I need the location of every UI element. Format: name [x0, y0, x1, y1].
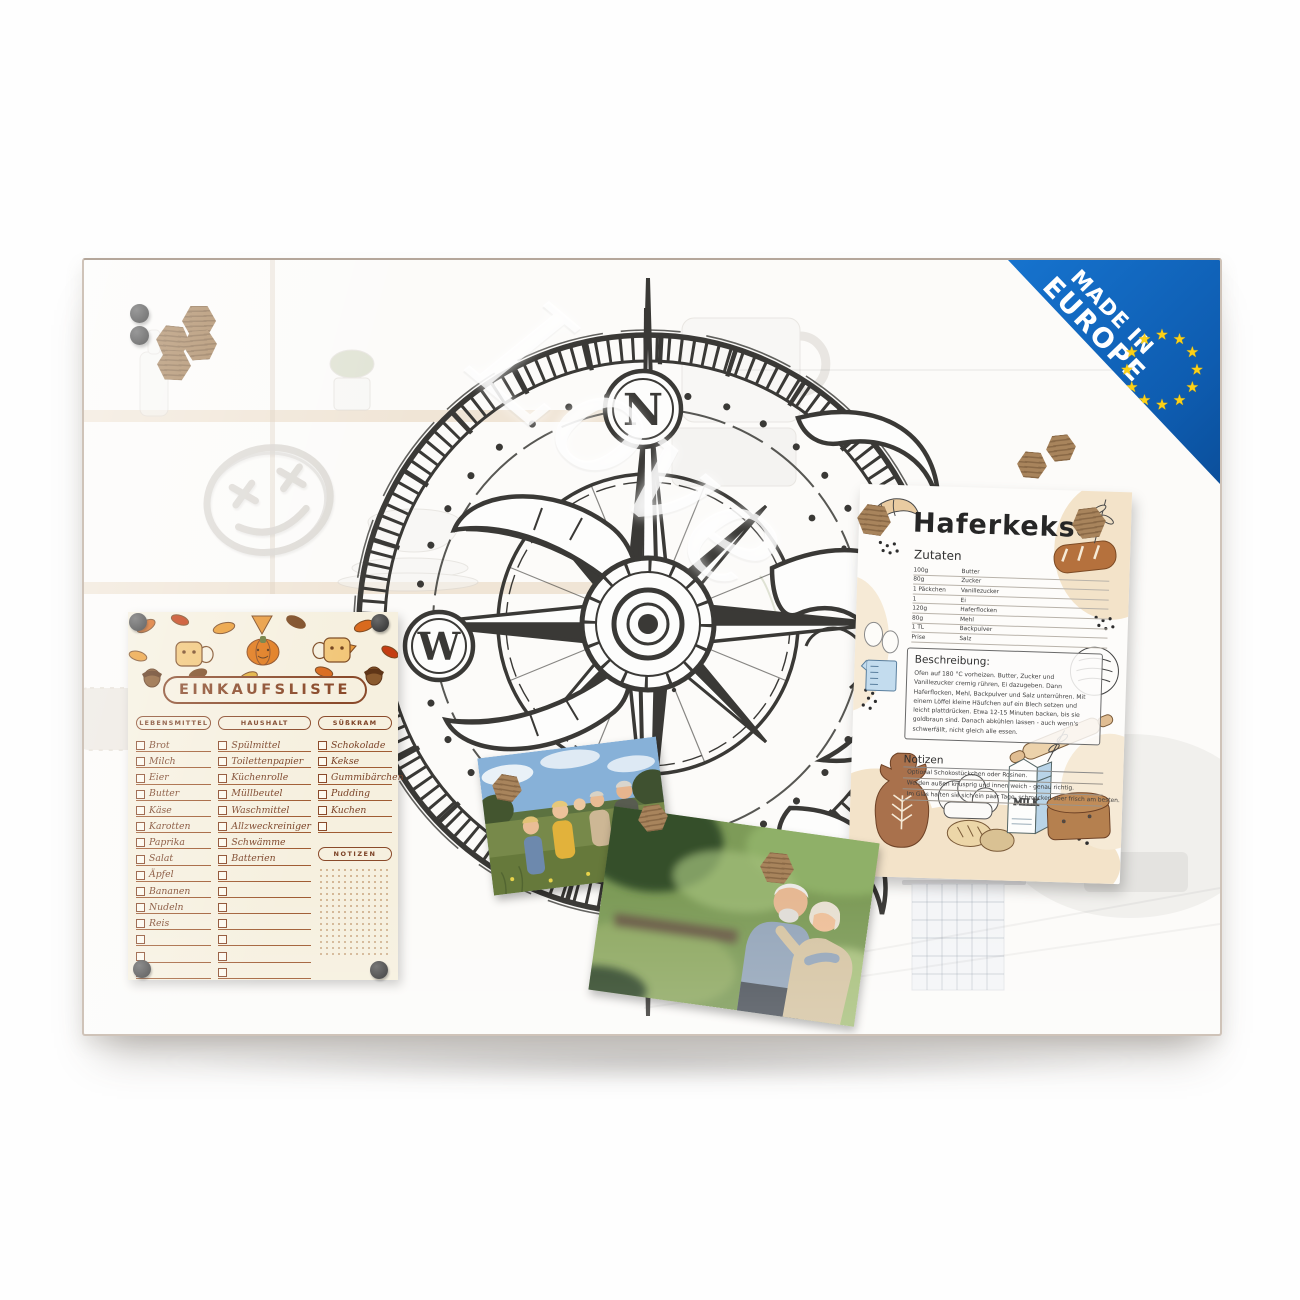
- list-item: Milch: [136, 752, 211, 768]
- eu-star-icon: ★: [1155, 398, 1168, 413]
- board-drop-shadow: [130, 1038, 1170, 1084]
- list-item-empty: [218, 914, 311, 930]
- column-header: HAUSHALT: [218, 716, 311, 730]
- checkbox-icon: [318, 822, 327, 831]
- list-item: Allzweckreiniger: [218, 817, 311, 833]
- list-item-empty: [218, 882, 311, 898]
- description-text: Ofen auf 180 °C vorheizen. Butter, Zucke…: [912, 669, 1094, 740]
- checkbox-icon: [218, 741, 227, 750]
- eu-star-icon: ★: [1173, 332, 1186, 347]
- glass-magnet-board: N W Love MADE IN EUROPE: [82, 258, 1222, 1036]
- round-magnet: [129, 613, 147, 631]
- column-header: SÜßKRAM: [318, 716, 392, 730]
- list-item-empty: [218, 946, 311, 962]
- ingredients-header: Zutaten: [914, 548, 962, 563]
- list-item-empty: [136, 946, 211, 962]
- list-item: Waschmittel: [218, 801, 311, 817]
- checkbox-icon: [218, 774, 227, 783]
- checkbox-icon: [318, 790, 327, 799]
- checkbox-icon: [318, 774, 327, 783]
- eu-stars-circle: ★ ★ ★ ★ ★ ★ ★ ★ ★ ★ ★ ★: [1126, 334, 1198, 406]
- checkbox-icon: [136, 757, 145, 766]
- ingredients-table: 100gButter 80gZucker 1 PäckchenVanillezu…: [911, 566, 1109, 649]
- checkbox-icon: [136, 741, 145, 750]
- checkbox-icon: [136, 806, 145, 815]
- list-item-empty: [218, 930, 311, 946]
- shopping-list-pad: EINKAUFSLISTE LEBENSMITTEL Brot Milch Ei…: [128, 612, 398, 980]
- checkbox-icon: [218, 838, 227, 847]
- compass-north-label: N: [623, 385, 663, 436]
- checkbox-icon: [318, 757, 327, 766]
- eu-star-icon: ★: [1125, 345, 1138, 360]
- list-item-empty: [218, 963, 311, 979]
- checkbox-icon: [136, 919, 145, 928]
- round-magnet: [130, 326, 149, 345]
- checkbox-icon: [318, 741, 327, 750]
- list-item: Gummibärchen: [318, 768, 392, 784]
- list-item: Spülmittel: [218, 736, 311, 752]
- description-box: Beschreibung: Ofen auf 180 °C vorheizen.…: [904, 647, 1103, 745]
- product-photo: N W Love MADE IN EUROPE: [0, 0, 1300, 1300]
- list-item: Salat: [136, 849, 211, 865]
- checkbox-icon: [218, 855, 227, 864]
- egg-doodle: [864, 622, 883, 647]
- eu-star-icon: ★: [1120, 363, 1133, 378]
- list-item: Batterien: [218, 849, 311, 865]
- eu-star-icon: ★: [1173, 393, 1186, 408]
- list-item: Bananen: [136, 882, 211, 898]
- notes-header: NOTIZEN: [318, 847, 392, 861]
- shopping-column-household: HAUSHALT Spülmittel Toilettenpapier Küch…: [218, 716, 311, 979]
- checkbox-icon: [218, 871, 227, 880]
- compass-west-label: W: [417, 624, 462, 669]
- notes-dot-grid: [318, 867, 392, 955]
- compass-west-badge: W: [405, 612, 473, 680]
- checkbox-icon: [218, 903, 227, 912]
- list-item: Schwämme: [218, 833, 311, 849]
- shopping-list-title: EINKAUFSLISTE: [163, 676, 367, 704]
- recipe-card: MILK Haferkekse Zutaten 100gButter 80gZu…: [848, 484, 1132, 884]
- column-header: LEBENSMITTEL: [136, 716, 211, 730]
- eu-star-icon: ★: [1155, 328, 1168, 343]
- list-item: Reis: [136, 914, 211, 930]
- list-item: Küchenrolle: [218, 768, 311, 784]
- checkbox-icon: [136, 838, 145, 847]
- list-item-empty: [136, 930, 211, 946]
- list-item: Schokolade: [318, 736, 392, 752]
- elderly-couple-photo: [588, 806, 879, 1026]
- measuring-cup-doodle: [861, 660, 897, 691]
- round-magnet: [371, 614, 389, 632]
- checkbox-icon: [218, 968, 227, 977]
- eu-star-icon: ★: [1190, 363, 1203, 378]
- checkbox-icon: [136, 774, 145, 783]
- list-item: Eier: [136, 768, 211, 784]
- checkbox-icon: [136, 887, 145, 896]
- checkbox-icon: [218, 887, 227, 896]
- list-item: Brot: [136, 736, 211, 752]
- checkbox-icon: [136, 822, 145, 831]
- list-item: Kekse: [318, 752, 392, 768]
- round-magnet: [133, 960, 151, 978]
- checkbox-icon: [136, 935, 145, 944]
- compass-north-badge: N: [605, 371, 681, 447]
- checkbox-icon: [218, 822, 227, 831]
- checkbox-icon: [218, 952, 227, 961]
- recipe-notes: Notizen Optional Schokostückchen oder Ro…: [902, 747, 1104, 806]
- eu-star-icon: ★: [1186, 345, 1199, 360]
- recipe-title: Haferkekse: [909, 507, 1100, 544]
- list-item: Pudding: [318, 785, 392, 801]
- list-item: Paprika: [136, 833, 211, 849]
- checkbox-icon: [136, 903, 145, 912]
- round-magnet: [130, 304, 149, 323]
- list-item: Äpfel: [136, 866, 211, 882]
- checkbox-icon: [136, 871, 145, 880]
- checkbox-icon: [218, 757, 227, 766]
- list-item: Müllbeutel: [218, 785, 311, 801]
- checkbox-icon: [218, 790, 227, 799]
- checkbox-icon: [136, 855, 145, 864]
- list-item: Butter: [136, 785, 211, 801]
- checkbox-icon: [136, 790, 145, 799]
- list-item: Toilettenpapier: [218, 752, 311, 768]
- checkbox-icon: [218, 806, 227, 815]
- list-item-empty: [218, 898, 311, 914]
- list-item: Käse: [136, 801, 211, 817]
- list-item-empty: [218, 866, 311, 882]
- list-item-empty: [318, 817, 392, 833]
- list-item: Karotten: [136, 817, 211, 833]
- eu-star-icon: ★: [1138, 332, 1151, 347]
- list-item: Nudeln: [136, 898, 211, 914]
- smiley-wall-decal: [194, 432, 344, 572]
- shopping-column-sweets: SÜßKRAM Schokolade Kekse Gummibärchen Pu…: [318, 716, 392, 979]
- checkbox-icon: [318, 806, 327, 815]
- eu-star-icon: ★: [1186, 380, 1199, 395]
- list-item: Kuchen: [318, 801, 392, 817]
- shopping-column-groceries: LEBENSMITTEL Brot Milch Eier Butter Käse…: [136, 716, 211, 979]
- round-magnet: [370, 961, 388, 979]
- checkbox-icon: [218, 919, 227, 928]
- checkbox-icon: [218, 935, 227, 944]
